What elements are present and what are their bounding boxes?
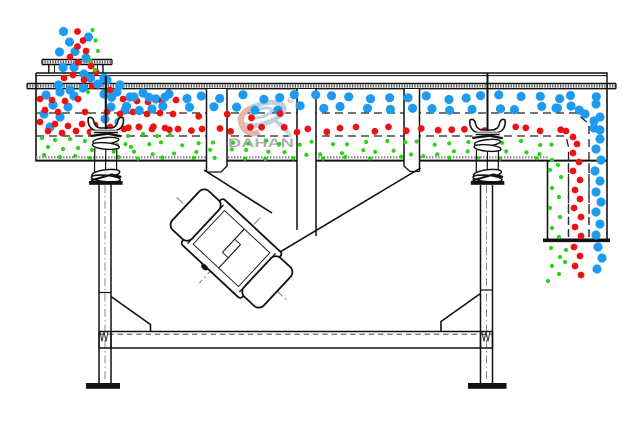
svg-text:DAHAN: DAHAN <box>228 136 294 150</box>
